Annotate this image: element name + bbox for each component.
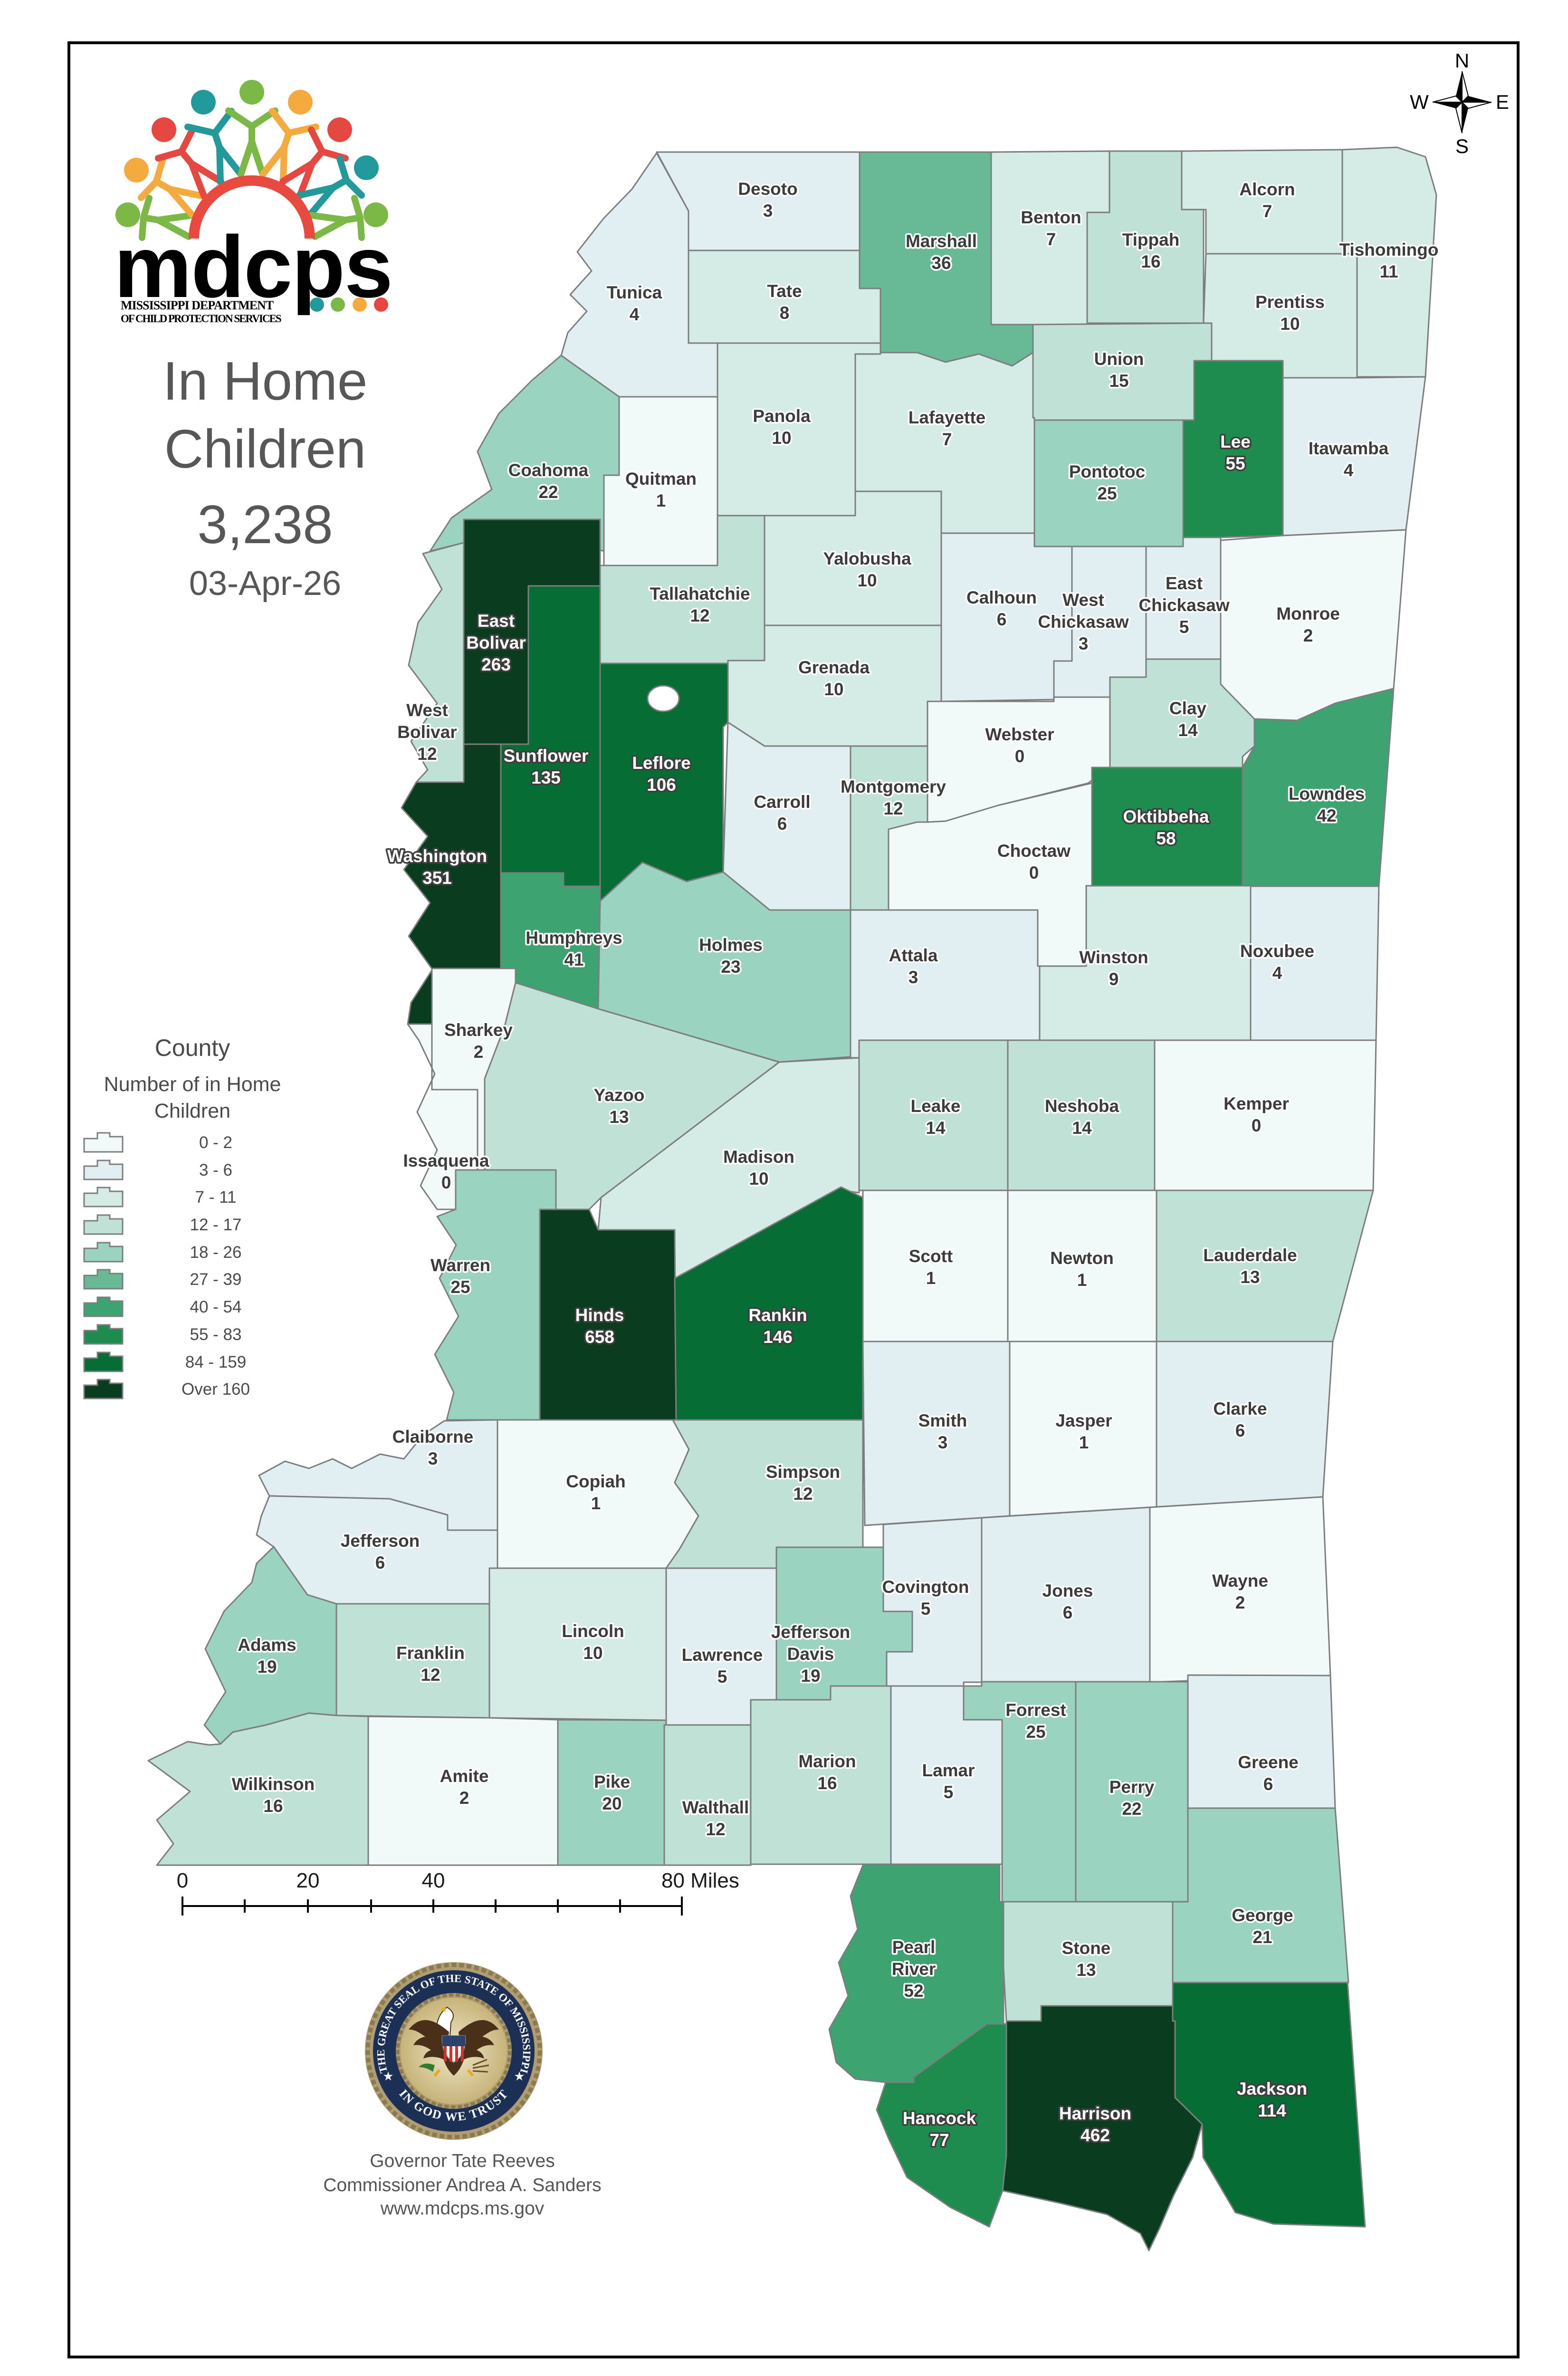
svg-text:County: County	[155, 1035, 230, 1061]
svg-text:Covington: Covington	[882, 1577, 969, 1597]
svg-text:Lincoln: Lincoln	[562, 1621, 624, 1641]
svg-text:Holmes: Holmes	[699, 935, 763, 955]
svg-text:55: 55	[1225, 454, 1245, 473]
svg-text:Neshoba: Neshoba	[1045, 1096, 1119, 1116]
svg-text:Union: Union	[1094, 349, 1144, 369]
svg-text:7: 7	[1046, 230, 1056, 249]
svg-text:Yazoo: Yazoo	[594, 1085, 645, 1105]
svg-text:Tippah: Tippah	[1122, 230, 1180, 249]
svg-text:77: 77	[929, 2130, 949, 2150]
svg-text:E: E	[1496, 91, 1509, 113]
svg-text:84 - 159: 84 - 159	[185, 1353, 246, 1371]
svg-text:8: 8	[780, 303, 790, 323]
svg-text:Quitman: Quitman	[625, 469, 697, 489]
svg-text:13: 13	[1240, 1267, 1260, 1287]
svg-text:146: 146	[763, 1327, 793, 1347]
svg-text:1: 1	[1079, 1433, 1089, 1452]
svg-text:03-Apr-26: 03-Apr-26	[189, 565, 341, 603]
svg-text:Wayne: Wayne	[1212, 1571, 1268, 1590]
svg-text:Leake: Leake	[911, 1096, 961, 1116]
svg-text:Harrison: Harrison	[1059, 2104, 1131, 2123]
svg-text:Pike: Pike	[594, 1772, 630, 1792]
svg-text:Tallahatchie: Tallahatchie	[650, 584, 750, 604]
svg-text:21: 21	[1252, 1927, 1272, 1947]
svg-text:Clarke: Clarke	[1213, 1399, 1267, 1418]
svg-text:Issaquena: Issaquena	[403, 1151, 489, 1170]
svg-text:Scott: Scott	[909, 1246, 953, 1266]
svg-text:Tunica: Tunica	[607, 283, 662, 302]
svg-text:7: 7	[942, 430, 952, 449]
svg-text:3,238: 3,238	[197, 495, 333, 555]
svg-text:Copiah: Copiah	[566, 1472, 625, 1491]
svg-text:Rankin: Rankin	[748, 1305, 807, 1325]
svg-text:19: 19	[801, 1666, 820, 1686]
svg-text:1: 1	[926, 1268, 936, 1288]
svg-text:Sharkey: Sharkey	[444, 1020, 513, 1040]
svg-text:West: West	[1062, 590, 1104, 610]
svg-text:2: 2	[474, 1042, 484, 1062]
svg-text:0: 0	[1252, 1116, 1262, 1135]
svg-text:6: 6	[1263, 1774, 1273, 1794]
svg-text:Simpson: Simpson	[766, 1462, 840, 1482]
svg-text:Jefferson: Jefferson	[771, 1622, 851, 1642]
svg-text:West: West	[406, 700, 448, 720]
svg-text:12 - 17: 12 - 17	[190, 1216, 242, 1234]
svg-text:4: 4	[1344, 460, 1354, 480]
svg-text:3: 3	[1079, 634, 1089, 653]
svg-text:10: 10	[857, 571, 877, 590]
svg-text:40: 40	[422, 1869, 445, 1892]
svg-text:80 Miles: 80 Miles	[661, 1869, 739, 1892]
svg-text:Prentiss: Prentiss	[1255, 292, 1325, 312]
svg-text:Jackson: Jackson	[1237, 2079, 1307, 2098]
svg-text:52: 52	[904, 1981, 923, 2001]
svg-text:0: 0	[177, 1869, 188, 1892]
svg-text:16: 16	[263, 1796, 283, 1816]
svg-text:MISSISSIPPI DEPARTMENT: MISSISSIPPI DEPARTMENT	[121, 298, 274, 312]
svg-text:W: W	[1410, 91, 1429, 113]
svg-text:0: 0	[1015, 747, 1025, 766]
svg-text:Webster: Webster	[985, 725, 1054, 744]
svg-text:Clay: Clay	[1169, 699, 1207, 718]
svg-text:2: 2	[1235, 1593, 1245, 1612]
svg-text:12: 12	[421, 1665, 440, 1685]
svg-text:Yalobusha: Yalobusha	[823, 549, 911, 568]
svg-text:114: 114	[1258, 2101, 1286, 2120]
svg-text:0 - 2: 0 - 2	[199, 1133, 232, 1152]
svg-text:20: 20	[296, 1869, 320, 1892]
svg-text:3: 3	[938, 1433, 948, 1452]
svg-text:42: 42	[1317, 806, 1336, 825]
svg-text:6: 6	[1235, 1421, 1245, 1440]
svg-text:58: 58	[1156, 829, 1176, 848]
svg-text:Oktibbeha: Oktibbeha	[1123, 807, 1209, 826]
svg-text:4: 4	[630, 305, 640, 324]
svg-text:George: George	[1232, 1906, 1293, 1925]
svg-text:25: 25	[450, 1277, 470, 1297]
svg-text:Alcorn: Alcorn	[1239, 180, 1295, 199]
svg-text:12: 12	[706, 1820, 725, 1839]
svg-text:19: 19	[257, 1657, 277, 1677]
svg-text:Carroll: Carroll	[754, 792, 810, 812]
svg-text:5: 5	[1179, 617, 1189, 637]
svg-text:Bolivar: Bolivar	[397, 722, 457, 742]
svg-text:Commissioner Andrea A. Sanders: Commissioner Andrea A. Sanders	[323, 2175, 601, 2195]
svg-text:Jones: Jones	[1042, 1581, 1093, 1600]
svg-text:6: 6	[375, 1553, 385, 1572]
svg-text:135: 135	[531, 768, 561, 787]
svg-text:N: N	[1455, 49, 1469, 72]
svg-text:Children: Children	[164, 419, 366, 479]
svg-text:5: 5	[717, 1667, 727, 1686]
svg-text:25: 25	[1026, 1722, 1045, 1742]
svg-text:OF CHILD PROTECTION SERVICES: OF CHILD PROTECTION SERVICES	[121, 313, 281, 325]
svg-text:Choctaw: Choctaw	[997, 841, 1071, 861]
svg-text:Sunflower: Sunflower	[504, 746, 589, 766]
svg-text:Kemper: Kemper	[1224, 1094, 1289, 1113]
svg-text:Jefferson: Jefferson	[341, 1531, 420, 1551]
svg-text:3: 3	[908, 968, 918, 987]
svg-text:15: 15	[1109, 371, 1128, 391]
svg-text:Pontotoc: Pontotoc	[1069, 462, 1145, 481]
svg-text:Chickasaw: Chickasaw	[1038, 612, 1128, 632]
svg-text:Chickasaw: Chickasaw	[1138, 595, 1229, 615]
svg-text:3 - 6: 3 - 6	[199, 1161, 232, 1179]
svg-text:Grenada: Grenada	[798, 658, 870, 677]
svg-text:Hancock: Hancock	[903, 2108, 976, 2128]
svg-text:10: 10	[1280, 314, 1300, 334]
svg-text:14: 14	[1072, 1118, 1092, 1138]
svg-text:6: 6	[1063, 1603, 1073, 1622]
svg-text:11: 11	[1379, 262, 1398, 281]
svg-text:Newton: Newton	[1050, 1248, 1114, 1268]
svg-text:263: 263	[481, 655, 511, 674]
svg-text:Marshall: Marshall	[906, 231, 977, 251]
svg-text:12: 12	[690, 606, 709, 625]
svg-text:5: 5	[921, 1599, 931, 1619]
svg-text:Panola: Panola	[753, 406, 811, 426]
svg-text:658: 658	[585, 1327, 614, 1347]
svg-text:10: 10	[772, 428, 791, 448]
svg-text:Jasper: Jasper	[1055, 1411, 1112, 1430]
svg-text:Warren: Warren	[430, 1255, 490, 1275]
svg-text:55 - 83: 55 - 83	[190, 1325, 242, 1344]
svg-text:Benton: Benton	[1021, 208, 1081, 227]
svg-text:7 - 11: 7 - 11	[195, 1188, 237, 1207]
svg-text:Tate: Tate	[767, 281, 802, 301]
svg-text:36: 36	[931, 253, 951, 273]
svg-text:Montgomery: Montgomery	[841, 777, 946, 796]
svg-text:10: 10	[583, 1643, 602, 1663]
svg-text:Stone: Stone	[1062, 1938, 1111, 1958]
svg-text:Tishomingo: Tishomingo	[1339, 240, 1439, 259]
svg-text:Calhoun: Calhoun	[966, 588, 1037, 607]
svg-text:Claiborne: Claiborne	[392, 1427, 474, 1447]
svg-text:18 - 26: 18 - 26	[190, 1243, 242, 1262]
svg-text:22: 22	[538, 482, 558, 502]
svg-text:9: 9	[1109, 969, 1119, 989]
svg-text:41: 41	[564, 950, 583, 969]
svg-text:Coahoma: Coahoma	[508, 460, 589, 480]
svg-text:10: 10	[749, 1169, 768, 1188]
svg-text:25: 25	[1097, 484, 1117, 503]
svg-text:In Home: In Home	[163, 351, 368, 412]
svg-text:Madison: Madison	[723, 1147, 794, 1167]
svg-text:14: 14	[1178, 720, 1198, 740]
svg-text:Lawrence: Lawrence	[682, 1645, 763, 1665]
svg-text:Lee: Lee	[1220, 432, 1251, 451]
svg-text:4: 4	[1272, 963, 1282, 983]
svg-text:Leflore: Leflore	[632, 753, 690, 773]
svg-text:5: 5	[944, 1782, 954, 1802]
svg-text:Number of in Home: Number of in Home	[104, 1073, 281, 1096]
svg-text:22: 22	[1122, 1799, 1141, 1819]
svg-text:3: 3	[428, 1449, 438, 1468]
svg-text:351: 351	[422, 868, 452, 888]
svg-text:12: 12	[793, 1484, 813, 1504]
svg-text:Washington: Washington	[387, 846, 487, 866]
svg-text:27 - 39: 27 - 39	[190, 1270, 242, 1289]
svg-text:Adams: Adams	[238, 1635, 296, 1655]
svg-text:Walthall: Walthall	[682, 1798, 749, 1817]
svg-text:Marion: Marion	[798, 1752, 856, 1771]
svg-text:Attala: Attala	[889, 946, 938, 965]
svg-text:Smith: Smith	[918, 1411, 967, 1430]
svg-text:Monroe: Monroe	[1276, 604, 1340, 623]
svg-text:23: 23	[721, 957, 740, 977]
svg-text:20: 20	[602, 1794, 621, 1813]
svg-text:Humphreys: Humphreys	[526, 928, 622, 948]
svg-text:2: 2	[459, 1788, 469, 1808]
svg-text:12: 12	[417, 744, 437, 764]
svg-text:Lauderdale: Lauderdale	[1203, 1245, 1297, 1265]
svg-text:0: 0	[441, 1173, 451, 1192]
svg-text:6: 6	[997, 610, 1007, 629]
svg-text:Bolivar: Bolivar	[466, 633, 526, 652]
svg-text:Children: Children	[154, 1100, 230, 1122]
svg-text:★: ★	[382, 2069, 393, 2083]
svg-text:Winston: Winston	[1079, 948, 1148, 967]
svg-text:13: 13	[609, 1107, 629, 1127]
svg-text:★: ★	[514, 2069, 525, 2083]
svg-text:East: East	[1166, 574, 1203, 593]
svg-text:2: 2	[1303, 626, 1313, 645]
svg-text:Perry: Perry	[1109, 1777, 1155, 1797]
svg-text:Lamar: Lamar	[922, 1761, 975, 1780]
svg-text:Lowndes: Lowndes	[1289, 784, 1365, 804]
svg-text:Forrest: Forrest	[1005, 1700, 1066, 1720]
svg-text:10: 10	[824, 680, 843, 699]
svg-text:Governor Tate Reeves: Governor Tate Reeves	[370, 2151, 555, 2171]
svg-text:Desoto: Desoto	[738, 179, 797, 199]
svg-text:40 - 54: 40 - 54	[190, 1298, 242, 1316]
svg-text:6: 6	[777, 814, 787, 834]
svg-text:Franklin: Franklin	[396, 1643, 465, 1663]
svg-text:Over 160: Over 160	[182, 1380, 250, 1399]
svg-text:S: S	[1455, 135, 1469, 157]
svg-text:0: 0	[1029, 863, 1039, 882]
svg-text:1: 1	[1077, 1270, 1087, 1290]
svg-text:Greene: Greene	[1238, 1753, 1299, 1772]
svg-text:East: East	[478, 611, 515, 631]
svg-text:1: 1	[591, 1494, 601, 1513]
svg-text:Amite: Amite	[440, 1766, 489, 1786]
svg-text:12: 12	[883, 799, 903, 818]
svg-text:14: 14	[926, 1118, 946, 1138]
svg-text:13: 13	[1076, 1960, 1096, 1980]
svg-text:106: 106	[647, 775, 676, 795]
svg-text:Itawamba: Itawamba	[1309, 439, 1389, 458]
svg-text:1: 1	[656, 491, 666, 510]
svg-text:462: 462	[1080, 2126, 1110, 2145]
svg-text:Wilkinson: Wilkinson	[232, 1774, 315, 1794]
svg-text:3: 3	[763, 201, 773, 220]
svg-text:16: 16	[817, 1773, 837, 1793]
svg-text:Pearl: Pearl	[892, 1937, 936, 1957]
svg-text:Hinds: Hinds	[575, 1305, 624, 1325]
svg-text:Noxubee: Noxubee	[1240, 941, 1314, 961]
svg-text:Davis: Davis	[787, 1644, 834, 1664]
svg-text:Lafayette: Lafayette	[908, 408, 985, 427]
svg-text:www.mdcps.ms.gov: www.mdcps.ms.gov	[380, 2198, 545, 2219]
svg-text:16: 16	[1141, 252, 1160, 271]
svg-text:River: River	[892, 1959, 936, 1979]
svg-text:7: 7	[1262, 201, 1272, 221]
